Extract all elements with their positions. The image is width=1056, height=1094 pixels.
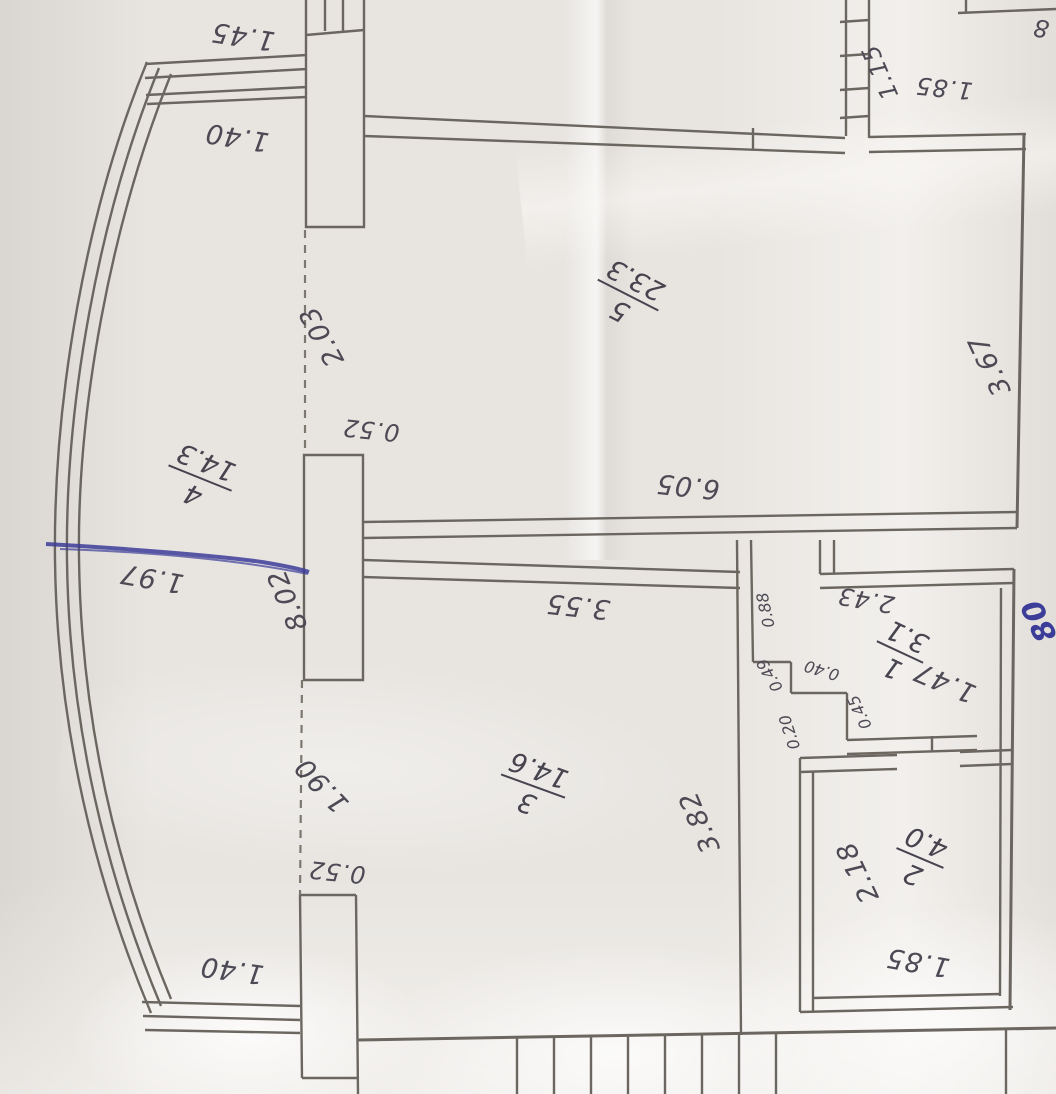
- wall-right-main: [1010, 569, 1014, 1010]
- wall-curved-facade-mid: [67, 68, 161, 1006]
- dashed-partition-lower: [300, 680, 302, 895]
- wall-right-inner: [1000, 588, 1001, 996]
- wall-topright-rung-1: [840, 20, 869, 22]
- pier-bottom-left-edge: [300, 895, 302, 1078]
- wall-6-05-inner: [364, 528, 1017, 538]
- wall-corridor-top: [358, 1028, 1056, 1040]
- wall-6-05-outer: [364, 512, 1017, 522]
- wall-room5-right: [1017, 134, 1024, 528]
- dim-room3-3-55: 3.55: [545, 589, 612, 623]
- wall-room3-right-inner-upper: [751, 540, 753, 662]
- wall-room2-bottom-outer: [800, 1007, 1013, 1012]
- dim-bottom-1-40: 1.40: [198, 952, 265, 988]
- wall-room1-bottom-outer: [847, 736, 977, 740]
- wall-topright-bottom-inner: [869, 149, 1026, 152]
- dim-bottom-0-52: 0.52: [307, 857, 367, 887]
- wall-top-left-3: [146, 87, 307, 95]
- pier-top-inner-line: [306, 30, 364, 35]
- pier-bottom-right-edge: [356, 895, 358, 1094]
- pier-middle-cross: [304, 455, 363, 680]
- wall-room1-top-outer: [820, 569, 1014, 574]
- floor-plan-drawing: [0, 0, 1056, 1094]
- wall-room2-top-left-inner: [800, 769, 897, 772]
- wall-bottom-left-3: [145, 1030, 300, 1033]
- wall-curved-facade-inner: [79, 74, 171, 999]
- wall-topright-rung-3: [840, 88, 869, 90]
- wall-room5-top-inner: [364, 136, 845, 153]
- scanned-floor-plan-photo: 1.45 1.40 2.03 0.52 3.67 8.02 1.97 6.05 …: [0, 0, 1056, 1094]
- wall-room2-top-right-inner: [960, 764, 1012, 766]
- wall-topright-edge-h: [958, 9, 1056, 13]
- dim-wall-6-05: 6.05: [655, 469, 722, 503]
- wall-bottom-left-1: [142, 1002, 300, 1006]
- wall-curved-facade-outer: [55, 62, 151, 1013]
- wall-room5-top-outer: [364, 116, 845, 138]
- wall-room3-top-inner: [363, 577, 740, 588]
- wall-top-left-1: [145, 55, 307, 64]
- wall-room2-top-left-outer: [800, 755, 897, 758]
- wall-room2-bottom-inner: [813, 994, 1000, 998]
- wall-room1-bottom-inner: [847, 750, 977, 754]
- stair-treads: [517, 1033, 776, 1094]
- wall-topright-rung-4: [840, 116, 869, 118]
- wall-top-left-4: [147, 97, 307, 104]
- dim-pier-0-52-top: 0.52: [341, 415, 401, 445]
- wall-top-left-2: [145, 69, 307, 78]
- wall-room3-right-outer: [737, 540, 741, 1035]
- wall-room3-top-outer: [363, 560, 740, 572]
- wall-bottom-left-2: [143, 1016, 300, 1020]
- dim-topright-1-85: 1.85: [914, 73, 974, 103]
- wall-topright-bottom-outer: [869, 134, 1026, 137]
